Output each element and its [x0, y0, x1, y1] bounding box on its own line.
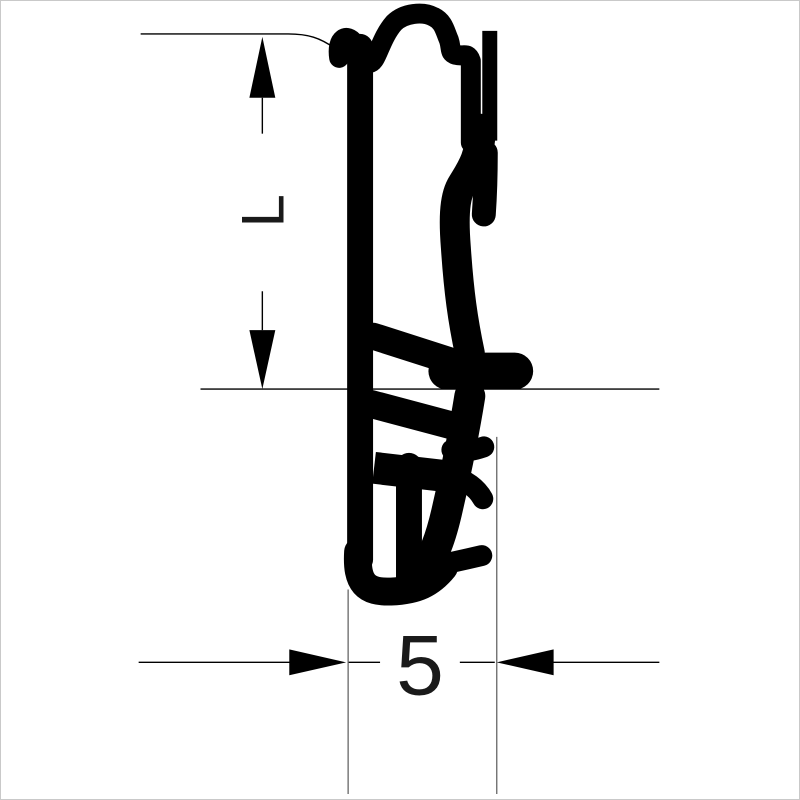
profile-diagonal-lower	[371, 404, 461, 428]
vertical-dimension-label: L	[229, 194, 296, 227]
seal-profile	[339, 14, 515, 592]
arrow-right-icon	[289, 649, 346, 675]
arrow-up-icon	[249, 37, 275, 98]
horizontal-dimension-label: 5	[396, 617, 444, 713]
arrow-left-icon	[497, 649, 554, 675]
drawing-canvas: L 5	[0, 0, 800, 800]
profile-fin-top	[452, 447, 484, 451]
top-reference-line	[141, 34, 335, 48]
arrow-down-icon	[249, 330, 275, 389]
technical-drawing: L 5	[1, 1, 799, 799]
profile-finger	[484, 153, 486, 215]
